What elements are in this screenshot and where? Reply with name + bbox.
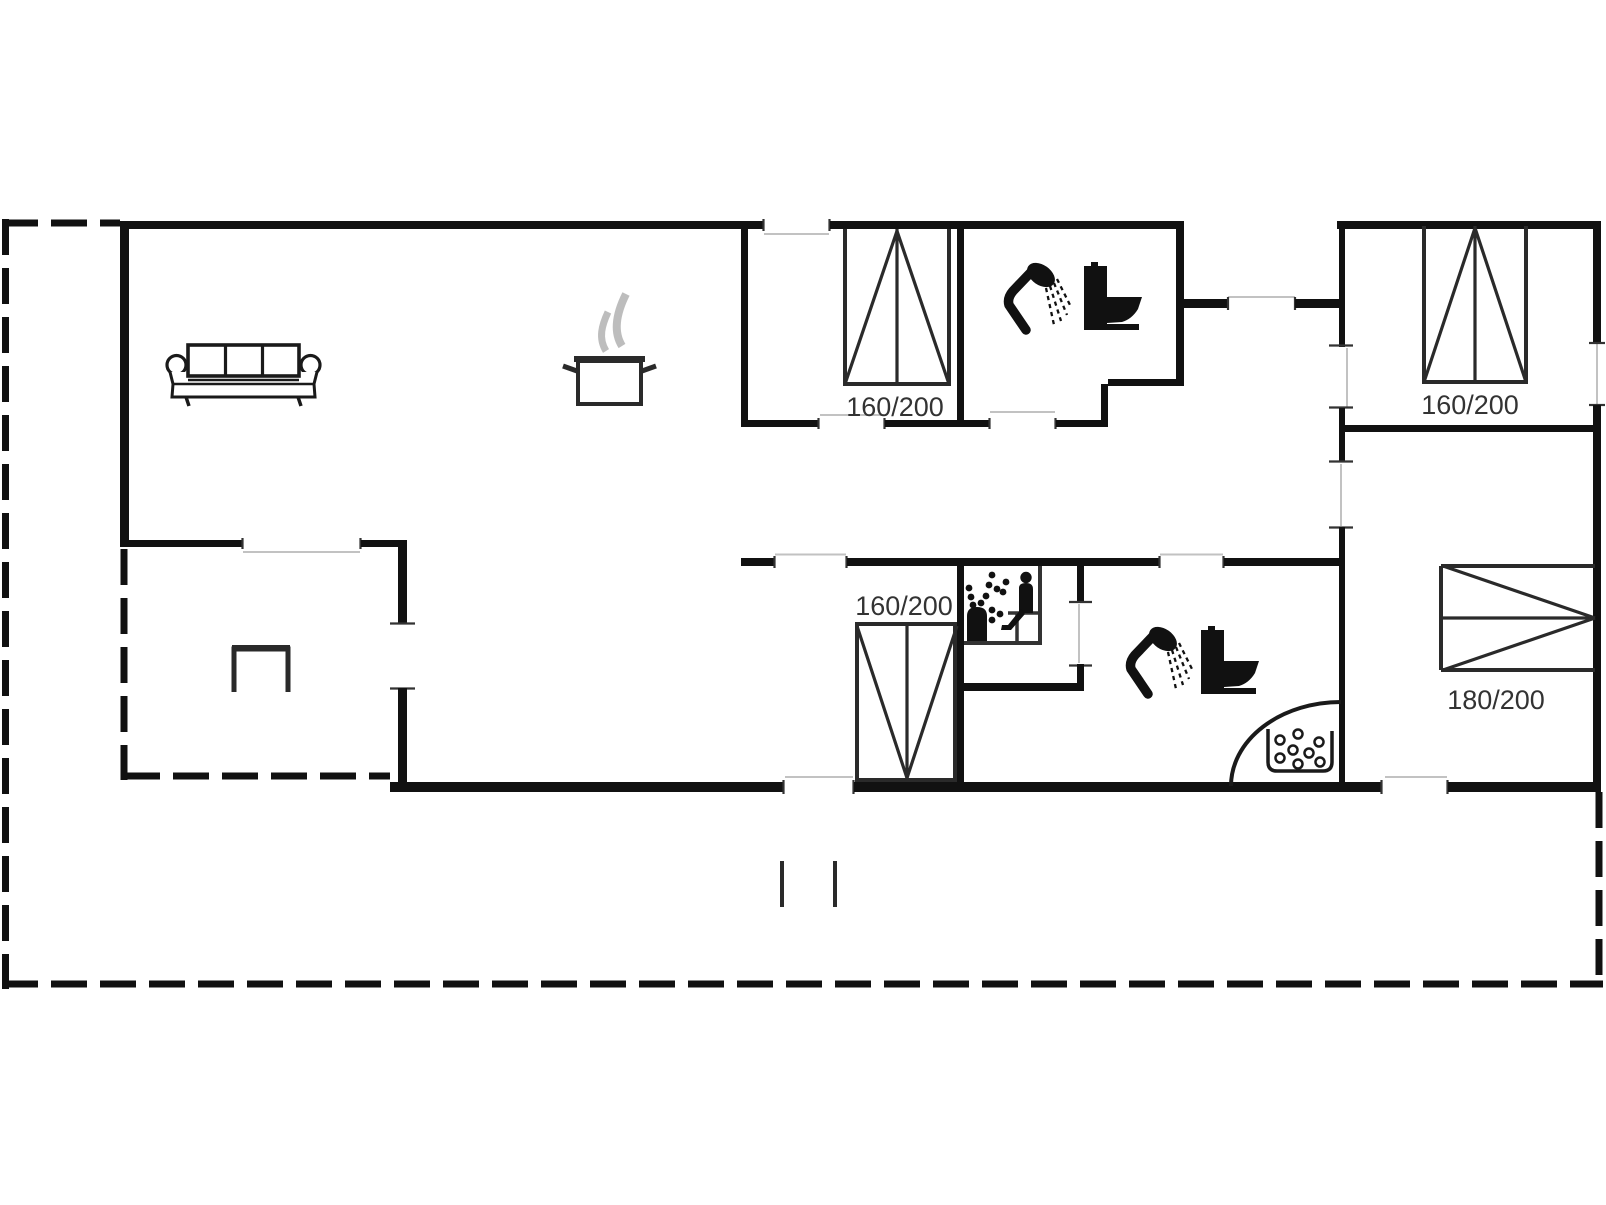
svg-text:180/200: 180/200 xyxy=(1447,685,1545,715)
svg-text:160/200: 160/200 xyxy=(855,591,953,621)
svg-text:160/200: 160/200 xyxy=(1421,390,1519,420)
svg-text:160/200: 160/200 xyxy=(846,392,944,422)
